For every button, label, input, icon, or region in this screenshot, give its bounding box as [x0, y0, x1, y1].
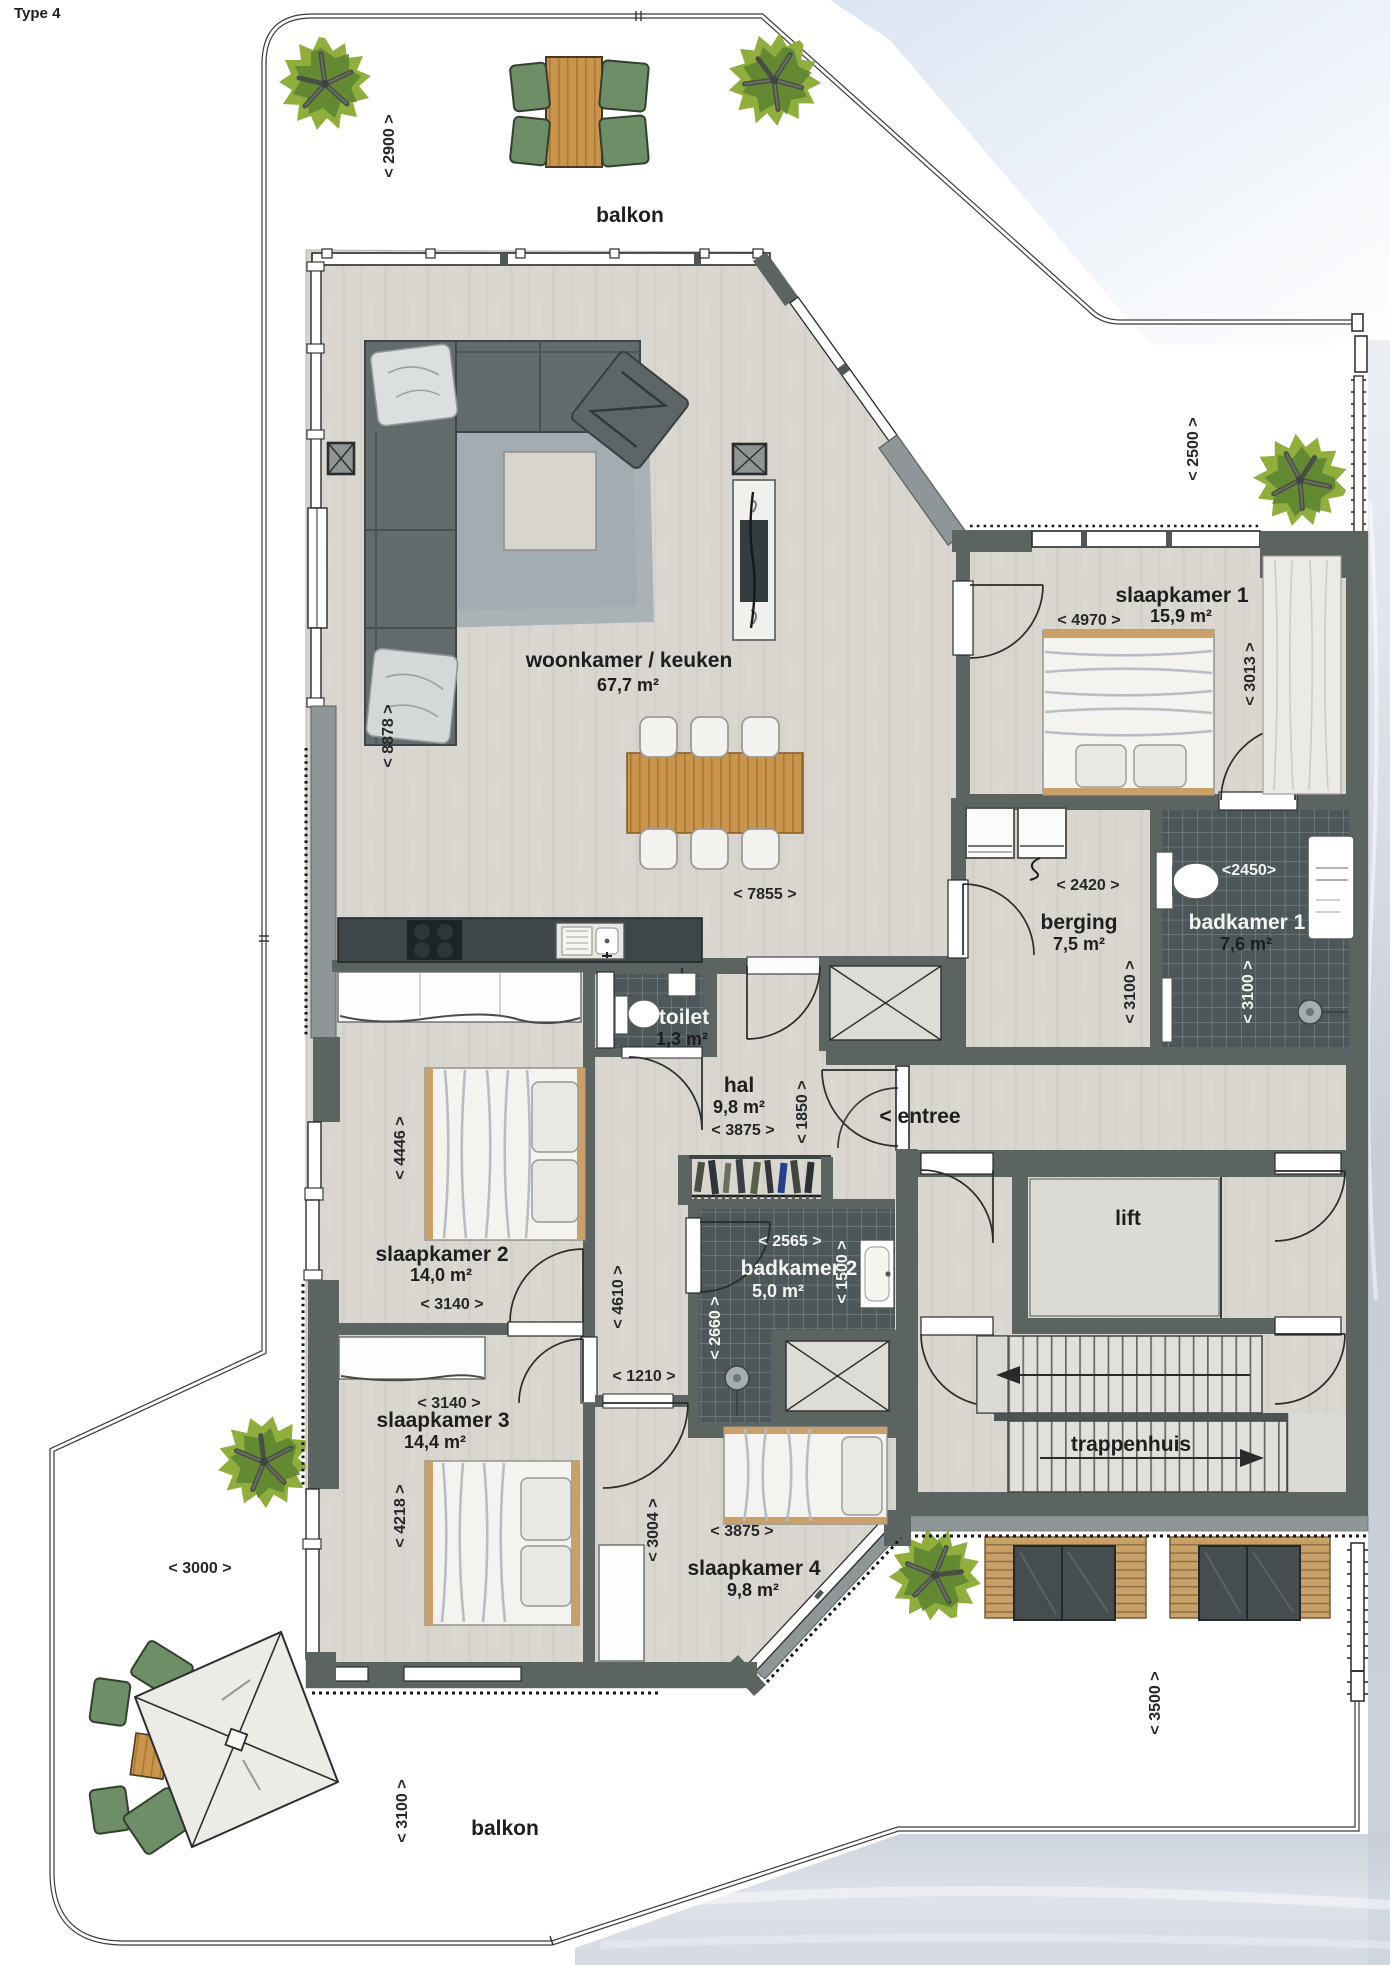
svg-text:67,7 m²: 67,7 m² — [597, 675, 659, 695]
svg-text:7,6 m²: 7,6 m² — [1220, 934, 1272, 954]
svg-text:14,4 m²: 14,4 m² — [404, 1432, 466, 1452]
svg-text:9,8 m²: 9,8 m² — [713, 1097, 765, 1117]
svg-text:< 4970 >: < 4970 > — [1057, 612, 1120, 629]
svg-text:5,0 m²: 5,0 m² — [752, 1281, 804, 1301]
svg-text:< 3100 >: < 3100 > — [1240, 960, 1257, 1023]
svg-text:lift: lift — [1115, 1207, 1141, 1230]
svg-text:slaapkamer 4: slaapkamer 4 — [687, 1557, 820, 1580]
svg-text:balkon: balkon — [596, 204, 664, 227]
svg-text:< 3140 >: < 3140 > — [420, 1296, 483, 1313]
svg-text:9,8 m²: 9,8 m² — [727, 1580, 779, 1600]
svg-text:< 3004 >: < 3004 > — [645, 1498, 662, 1561]
svg-text:trappenhuis: trappenhuis — [1071, 1433, 1191, 1456]
svg-text:< 3140 >: < 3140 > — [417, 1395, 480, 1412]
svg-text:hal: hal — [724, 1074, 754, 1097]
svg-text:slaapkamer 2: slaapkamer 2 — [375, 1243, 508, 1266]
svg-text:Type 4: Type 4 — [14, 5, 61, 22]
svg-text:< 1500 >: < 1500 > — [834, 1240, 851, 1303]
svg-text:< 4610 >: < 4610 > — [610, 1265, 627, 1328]
svg-text:< 1850 >: < 1850 > — [794, 1080, 811, 1143]
svg-text:< entree: < entree — [879, 1105, 960, 1128]
svg-text:< 3875 >: < 3875 > — [710, 1523, 773, 1540]
svg-text:<2450>: <2450> — [1222, 862, 1276, 879]
svg-text:slaapkamer 3: slaapkamer 3 — [376, 1409, 509, 1432]
svg-text:< 2420 >: < 2420 > — [1056, 877, 1119, 894]
svg-text:< 3500 >: < 3500 > — [1147, 1671, 1164, 1734]
svg-text:14,0 m²: 14,0 m² — [410, 1265, 472, 1285]
svg-text:< 4218 >: < 4218 > — [392, 1484, 409, 1547]
svg-text:toilet: toilet — [659, 1006, 709, 1029]
svg-text:< 2660 >: < 2660 > — [707, 1296, 724, 1359]
svg-text:15,9 m²: 15,9 m² — [1150, 606, 1212, 626]
svg-text:< 3100 >: < 3100 > — [394, 1779, 411, 1842]
svg-text:< 2500 >: < 2500 > — [1185, 417, 1202, 480]
svg-text:< 3100 >: < 3100 > — [1122, 960, 1139, 1023]
svg-text:< 4446 >: < 4446 > — [392, 1116, 409, 1179]
svg-text:woonkamer / keuken: woonkamer / keuken — [525, 649, 733, 672]
svg-text:< 2900 >: < 2900 > — [381, 114, 398, 177]
svg-text:< 7855 >: < 7855 > — [733, 886, 796, 903]
svg-text:7,5 m²: 7,5 m² — [1053, 934, 1105, 954]
svg-text:< 8878 >: < 8878 > — [380, 704, 397, 767]
svg-text:slaapkamer 1: slaapkamer 1 — [1115, 584, 1248, 607]
svg-text:badkamer 1: badkamer 1 — [1189, 911, 1306, 934]
svg-text:< 3013 >: < 3013 > — [1242, 642, 1259, 705]
svg-text:berging: berging — [1041, 911, 1118, 934]
svg-text:< 3000 >: < 3000 > — [168, 1560, 231, 1577]
svg-text:< 1210 >: < 1210 > — [612, 1368, 675, 1385]
svg-text:< 2565 >: < 2565 > — [758, 1233, 821, 1250]
svg-text:balkon: balkon — [471, 1817, 539, 1840]
svg-text:1,3 m²: 1,3 m² — [656, 1029, 708, 1049]
svg-text:< 3875 >: < 3875 > — [711, 1122, 774, 1139]
